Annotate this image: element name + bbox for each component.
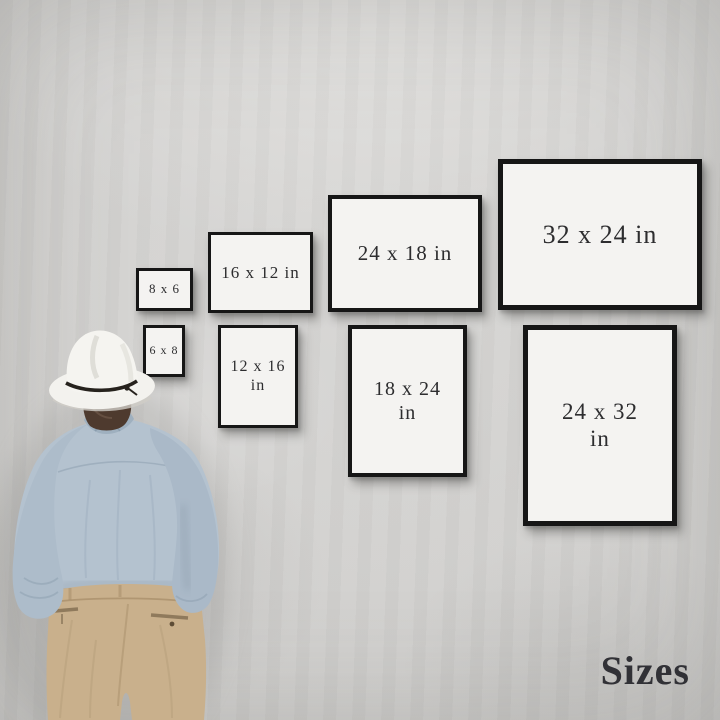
pants-right-pocket-button: [170, 622, 175, 627]
watermark-title: Sizes: [601, 647, 690, 694]
scene: 8 x 6 16 x 12 in 24 x 18 in 32 x 24 in 6…: [0, 0, 720, 720]
pants-left-pocket: [55, 609, 78, 611]
man-figure: [0, 0, 720, 720]
